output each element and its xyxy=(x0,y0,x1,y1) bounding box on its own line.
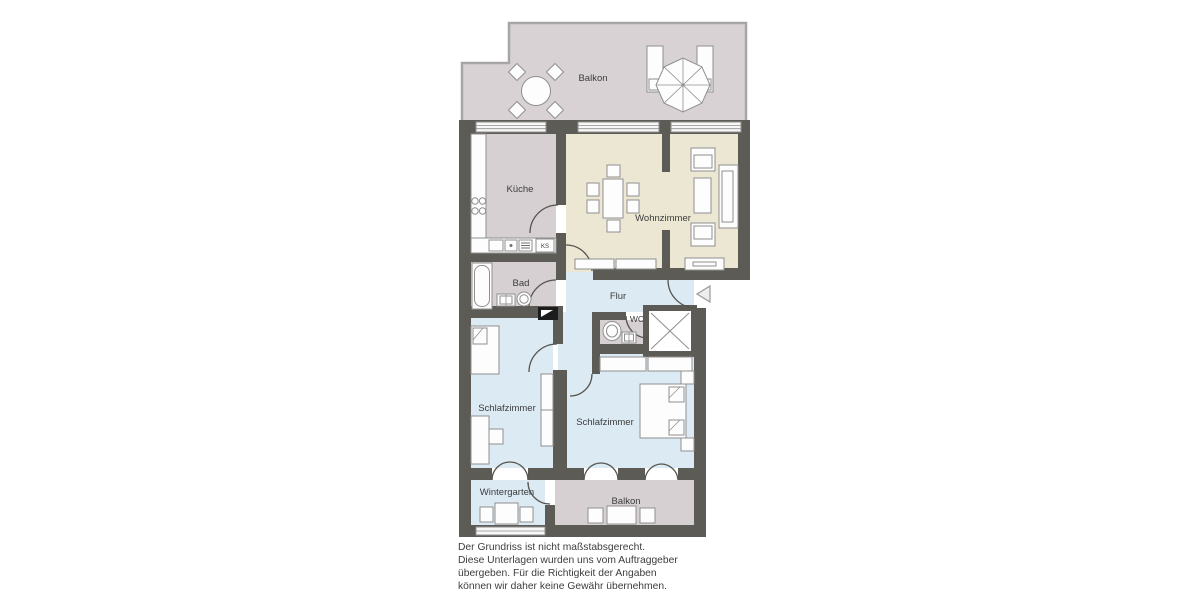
single-bed-icon xyxy=(471,326,499,374)
shaft-x-icon xyxy=(646,308,694,354)
label-schlafzimmer-right: Schlafzimmer xyxy=(576,417,634,428)
label-schlafzimmer-left: Schlafzimmer xyxy=(478,403,536,414)
label-wc: WC xyxy=(630,314,644,324)
sofa-icon xyxy=(719,165,738,228)
disclaimer-text: Der Grundriss ist nicht maßstabsgerecht.… xyxy=(458,542,678,592)
label-flur: Flur xyxy=(610,291,626,302)
coffee-table-icon xyxy=(694,178,711,213)
label-wohnzimmer: Wohnzimmer xyxy=(635,213,691,224)
shoe-cabinet-icon xyxy=(538,307,558,320)
label-balkon-bottom: Balkon xyxy=(611,496,640,507)
balkon-table-icon xyxy=(588,506,655,524)
toilet-wc-icon xyxy=(622,332,636,343)
sink-bad-icon xyxy=(517,292,531,306)
wardrobe-right-icon xyxy=(600,357,692,371)
entrance-arrow-icon xyxy=(697,286,710,302)
floorplan-drawing: KS xyxy=(0,0,1200,600)
fridge-label: KS xyxy=(541,244,549,250)
sink-wc-icon xyxy=(603,322,621,341)
bathtub-icon xyxy=(472,263,492,309)
window-kueche xyxy=(476,122,546,132)
sideboard-icons xyxy=(575,258,724,270)
fridge-icon: KS xyxy=(536,239,554,252)
sink-dishwasher-icon xyxy=(489,240,532,251)
window-wohnzimmer-left xyxy=(578,122,659,132)
toilet-bad-icon xyxy=(497,294,515,306)
disclaimer-line-3: übergeben. Für die Richtigkeit der Angab… xyxy=(458,568,657,579)
label-bad: Bad xyxy=(513,278,530,289)
label-kueche: Küche xyxy=(507,184,534,195)
disclaimer-line-1: Der Grundriss ist nicht maßstabsgerecht. xyxy=(458,542,645,553)
window-wohnzimmer-right xyxy=(671,122,741,132)
label-wintergarten: Wintergarten xyxy=(480,487,534,498)
disclaimer-line-2: Diese Unterlagen wurden uns vom Auftragg… xyxy=(458,555,678,566)
wardrobe-left-icon xyxy=(541,374,553,446)
label-balkon-top: Balkon xyxy=(578,73,607,84)
floorplan-page: KS xyxy=(0,0,1200,600)
window-wintergarten xyxy=(476,527,545,535)
disclaimer-line-4: können wir daher keine Gewähr übernehmen… xyxy=(458,581,667,592)
